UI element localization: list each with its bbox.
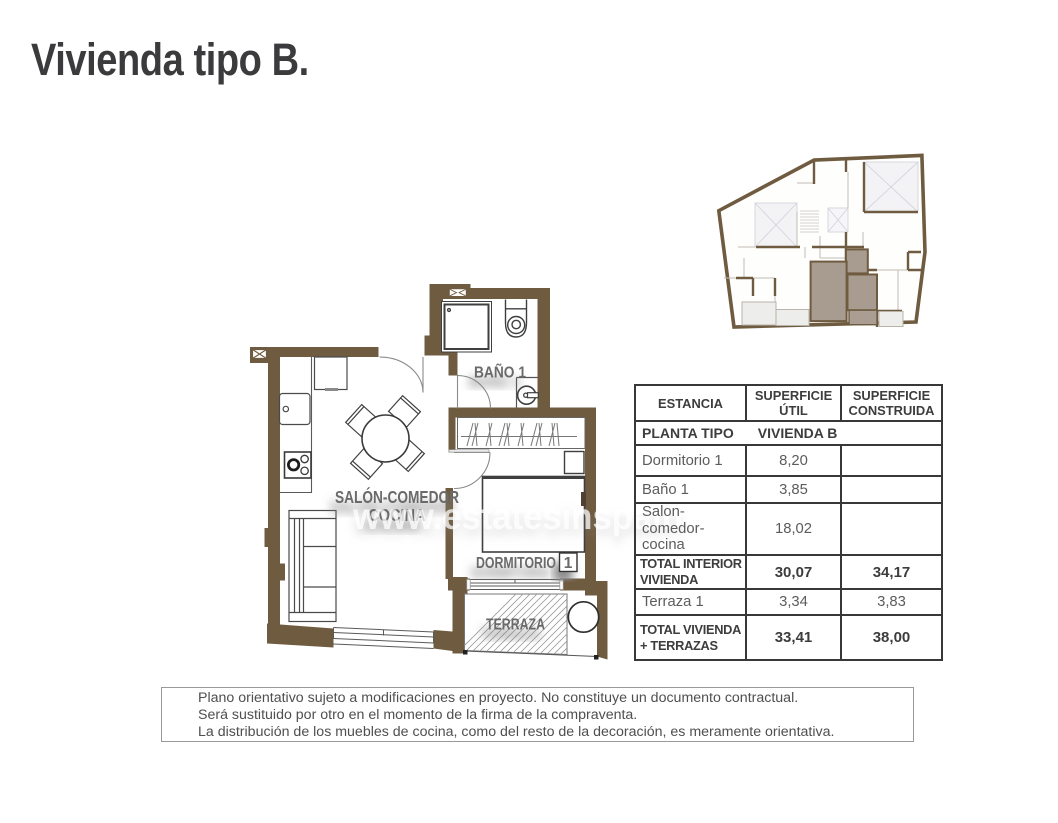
svg-text:DORMITORIO: DORMITORIO <box>476 555 556 572</box>
svg-text:BAÑO 1: BAÑO 1 <box>474 364 526 382</box>
svg-text:1: 1 <box>564 555 573 572</box>
svg-text:TERRAZA: TERRAZA <box>486 617 545 634</box>
